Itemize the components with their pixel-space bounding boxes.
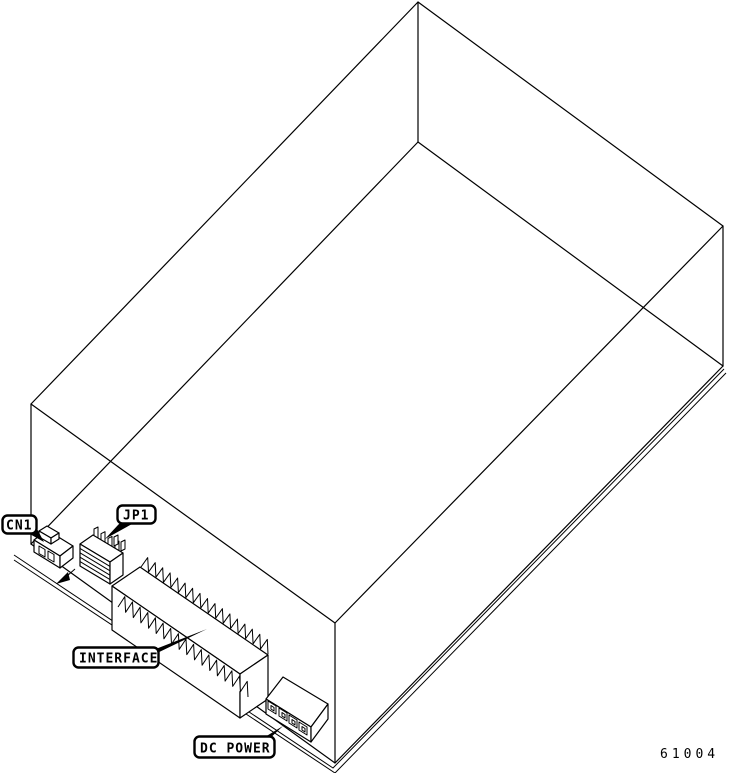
cn1-connector bbox=[34, 526, 73, 568]
box-hidden-bottom-right-edge bbox=[418, 142, 723, 366]
dc-power-callout: DC POWER bbox=[195, 726, 284, 758]
cn1-callout: CN1 bbox=[3, 516, 45, 543]
pin1-arrow-icon bbox=[56, 572, 70, 584]
jp1-callout-label: JP1 bbox=[123, 509, 149, 524]
jp1-jumper bbox=[80, 527, 125, 584]
interface-connector bbox=[112, 558, 268, 718]
figure-number: 61004 bbox=[660, 747, 719, 762]
dc-power-callout-label: DC POWER bbox=[200, 742, 271, 757]
interface-callout-label: INTERFACE bbox=[79, 652, 158, 667]
technical-drawing-page: CN1 JP1 INTERFACE DC POWER 61004 bbox=[0, 0, 730, 773]
cn1-callout-label: CN1 bbox=[6, 519, 32, 534]
box-top-face-outline bbox=[31, 2, 723, 623]
jp1-callout: JP1 bbox=[105, 506, 156, 540]
pin1-arrow-marker bbox=[56, 569, 75, 584]
drive-isometric-diagram: CN1 JP1 INTERFACE DC POWER 61004 bbox=[0, 0, 730, 773]
box-bottom-front-edges bbox=[31, 366, 723, 763]
